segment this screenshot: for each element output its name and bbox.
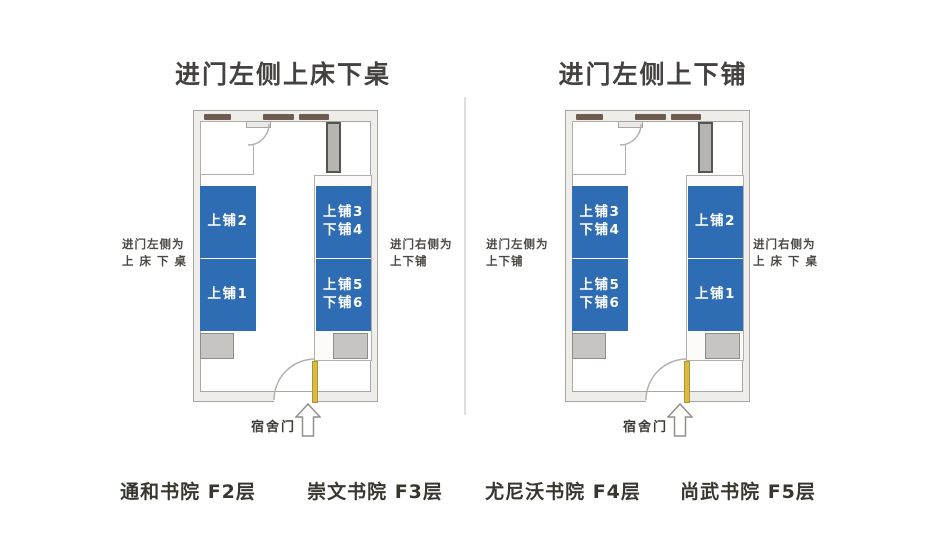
annotation-room2-right: 进门右侧为 上 床 下 桌 [753, 236, 818, 270]
vertical-divider [464, 97, 466, 415]
desk-block [572, 333, 606, 359]
bed-label-line: 上铺3 [580, 204, 621, 222]
wardrobe [698, 122, 713, 173]
annotation-room2-left: 进门左侧为 上下铺 [486, 236, 549, 270]
up-arrow-icon [667, 403, 693, 437]
window-icon [263, 114, 294, 120]
dorm-door-leaf [312, 361, 318, 403]
bathroom-door-leaf [246, 121, 271, 128]
window-icon [299, 114, 329, 120]
caption-college-f5: 尚武书院 F5层 [648, 477, 848, 504]
desk-block [705, 333, 740, 359]
caption-college-f3: 崇文书院 F3层 [275, 477, 475, 504]
dorm-door-label: 宿舍门 [623, 416, 668, 435]
bed-block: 上铺3 下铺4 [316, 186, 371, 258]
bed-block: 上铺3 下铺4 [572, 186, 628, 258]
bed-label-line: 上铺5 [580, 277, 621, 295]
bed-block: 上铺5 下铺6 [572, 259, 628, 331]
bed-block: 上铺5 下铺6 [316, 259, 371, 331]
bed-block: 上铺1 [688, 259, 743, 331]
window-icon [635, 114, 666, 120]
floorplan-room-1: 上铺2 上铺1 上铺3 下铺4 上铺5 下铺6 [193, 110, 378, 402]
annotation-room1-left: 进门左侧为 上 床 下 桌 [122, 236, 187, 270]
bed-label-line: 上铺1 [208, 286, 249, 304]
annotation-line: 进门左侧为 [122, 236, 187, 253]
bed-block: 上铺2 [200, 186, 256, 258]
diagram-title-right: 进门左侧上下铺 [503, 55, 803, 91]
bed-block: 上铺2 [688, 186, 743, 258]
bathroom-area [572, 121, 626, 175]
window-icon [671, 114, 701, 120]
bed-block: 上铺1 [200, 259, 256, 331]
bed-label-line: 下铺4 [580, 222, 621, 240]
dorm-door-label: 宿舍门 [251, 416, 296, 435]
annotation-line: 上下铺 [390, 253, 453, 270]
desk-block [200, 333, 234, 359]
window-icon [576, 114, 603, 120]
annotation-line: 进门左侧为 [486, 236, 549, 253]
caption-college-f2: 通和书院 F2层 [88, 477, 288, 504]
diagram-title-left: 进门左侧上床下桌 [133, 55, 433, 91]
bed-label-line: 上铺2 [695, 213, 736, 231]
bed-label-line: 下铺6 [580, 295, 621, 313]
dorm-door-leaf [684, 361, 690, 403]
desk-block [333, 333, 368, 359]
bed-label-line: 下铺4 [323, 222, 364, 240]
annotation-line: 上下铺 [486, 253, 549, 270]
bed-label-line: 上铺5 [323, 277, 364, 295]
bed-label-line: 上铺3 [323, 204, 364, 222]
floorplan-room-2: 上铺3 下铺4 上铺5 下铺6 上铺2 上铺1 [565, 110, 750, 402]
bed-label-line: 下铺6 [323, 295, 364, 313]
bed-label-line: 上铺1 [695, 286, 736, 304]
annotation-line: 上 床 下 桌 [122, 253, 187, 270]
window-icon [204, 114, 231, 120]
up-arrow-icon [295, 403, 321, 437]
bathroom-area [200, 121, 254, 175]
annotation-line: 进门右侧为 [753, 236, 818, 253]
annotation-line: 上 床 下 桌 [753, 253, 818, 270]
wardrobe [326, 122, 341, 173]
bathroom-door-leaf [618, 121, 643, 128]
annotation-line: 进门右侧为 [390, 236, 453, 253]
annotation-room1-right: 进门右侧为 上下铺 [390, 236, 453, 270]
caption-college-f4: 尤尼沃书院 F4层 [463, 477, 663, 504]
bed-label-line: 上铺2 [208, 213, 249, 231]
